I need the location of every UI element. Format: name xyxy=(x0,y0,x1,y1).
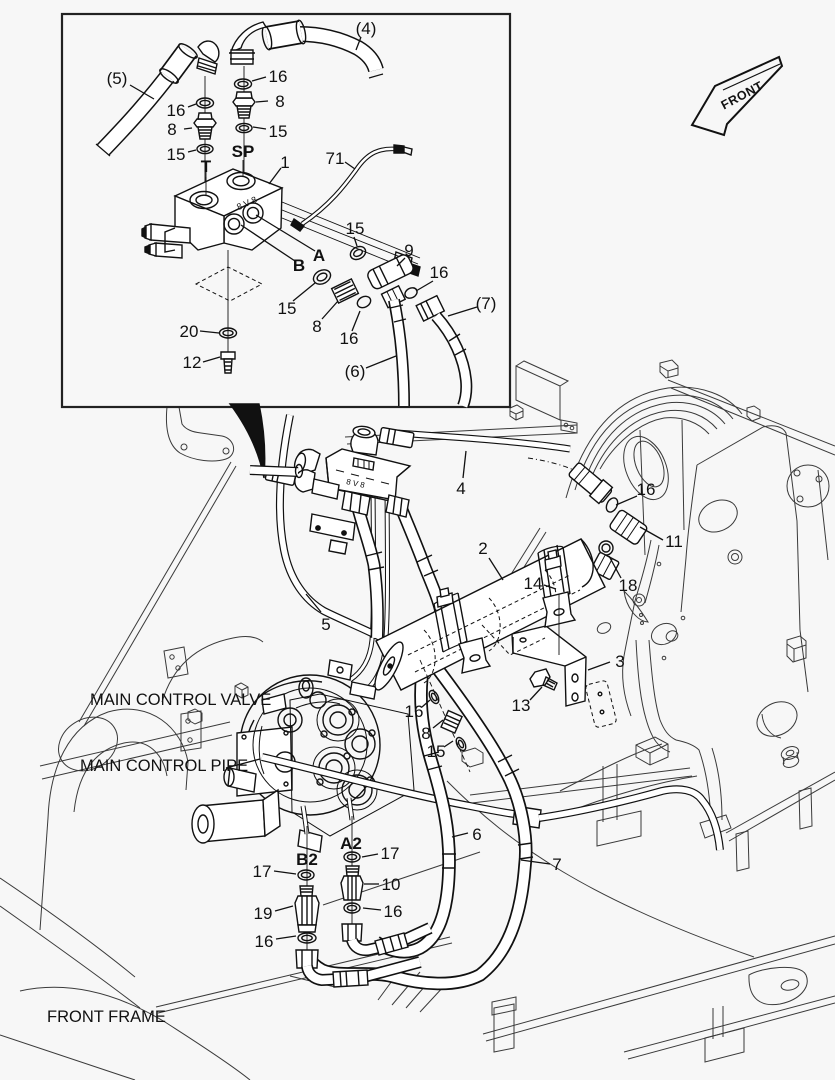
svg-text:15: 15 xyxy=(278,299,297,318)
svg-text:5: 5 xyxy=(321,615,330,634)
svg-text:16: 16 xyxy=(340,329,359,348)
svg-text:16: 16 xyxy=(405,702,424,721)
svg-text:19: 19 xyxy=(254,904,273,923)
svg-text:9: 9 xyxy=(404,241,413,260)
svg-text:15: 15 xyxy=(427,742,446,761)
svg-text:16: 16 xyxy=(637,480,656,499)
svg-text:15: 15 xyxy=(346,219,365,238)
svg-text:71: 71 xyxy=(326,149,345,168)
svg-text:(5): (5) xyxy=(107,69,128,88)
svg-text:17: 17 xyxy=(381,844,400,863)
svg-text:11: 11 xyxy=(665,532,683,551)
svg-text:3: 3 xyxy=(615,652,624,671)
svg-text:12: 12 xyxy=(183,353,202,372)
svg-text:A: A xyxy=(313,246,325,265)
svg-text:15: 15 xyxy=(269,122,288,141)
svg-text:16: 16 xyxy=(269,67,288,86)
svg-text:(7): (7) xyxy=(476,294,497,313)
svg-text:A2: A2 xyxy=(340,834,362,853)
svg-text:FRONT FRAME: FRONT FRAME xyxy=(47,1008,166,1026)
svg-text:13: 13 xyxy=(512,696,531,715)
svg-text:20: 20 xyxy=(180,322,199,341)
svg-text:16: 16 xyxy=(167,101,186,120)
svg-text:B2: B2 xyxy=(296,850,318,869)
svg-text:MAIN CONTROL PIPE: MAIN CONTROL PIPE xyxy=(80,757,248,775)
svg-text:6: 6 xyxy=(472,825,481,844)
svg-text:4: 4 xyxy=(456,479,465,498)
svg-text:8: 8 xyxy=(167,120,176,139)
svg-text:18: 18 xyxy=(619,576,638,595)
svg-text:15: 15 xyxy=(167,145,186,164)
svg-text:14: 14 xyxy=(524,574,543,593)
svg-text:8: 8 xyxy=(312,317,321,336)
svg-text:7: 7 xyxy=(552,855,561,874)
svg-text:2: 2 xyxy=(478,539,487,558)
svg-text:16: 16 xyxy=(430,263,449,282)
svg-text:MAIN CONTROL VALVE: MAIN CONTROL VALVE xyxy=(90,691,271,709)
svg-text:16: 16 xyxy=(384,902,403,921)
svg-text:10: 10 xyxy=(382,875,401,894)
svg-text:8: 8 xyxy=(421,724,430,743)
svg-text:(4): (4) xyxy=(356,19,377,38)
svg-text:1: 1 xyxy=(280,153,289,172)
svg-text:8: 8 xyxy=(275,92,284,111)
svg-text:16: 16 xyxy=(255,932,274,951)
svg-text:B: B xyxy=(293,256,305,275)
svg-text:T: T xyxy=(201,157,212,176)
svg-text:SP: SP xyxy=(232,142,255,161)
svg-text:(6): (6) xyxy=(345,362,366,381)
svg-text:17: 17 xyxy=(253,862,272,881)
